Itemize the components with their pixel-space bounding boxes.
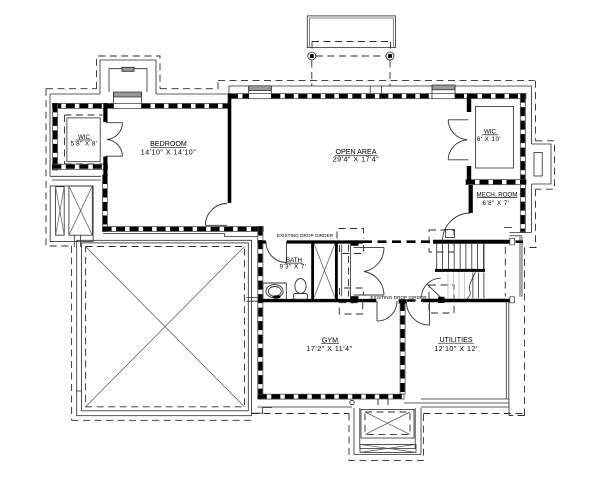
svg-text:BEDROOM: BEDROOM — [150, 140, 187, 148]
svg-text:9'3" X 7': 9'3" X 7' — [280, 263, 307, 270]
svg-text:EXISTING DROP GIRDER: EXISTING DROP GIRDER — [277, 233, 334, 238]
svg-text:5'8" X 8': 5'8" X 8' — [71, 141, 98, 148]
svg-text:14'10" X 14'10": 14'10" X 14'10" — [141, 148, 196, 156]
svg-text:GYM: GYM — [322, 337, 338, 345]
svg-text:29'4" X 17'4": 29'4" X 17'4" — [333, 155, 380, 163]
svg-text:17'2" X 11'4": 17'2" X 11'4" — [306, 345, 352, 353]
svg-text:EXISTING DROP GIRDER: EXISTING DROP GIRDER — [370, 295, 427, 300]
svg-text:6' X 10': 6' X 10' — [477, 136, 501, 143]
svg-text:6'8" X 7': 6'8" X 7' — [483, 200, 510, 207]
svg-text:12'10" X 12': 12'10" X 12' — [434, 345, 478, 353]
svg-text:UTILITIES: UTILITIES — [439, 336, 472, 344]
